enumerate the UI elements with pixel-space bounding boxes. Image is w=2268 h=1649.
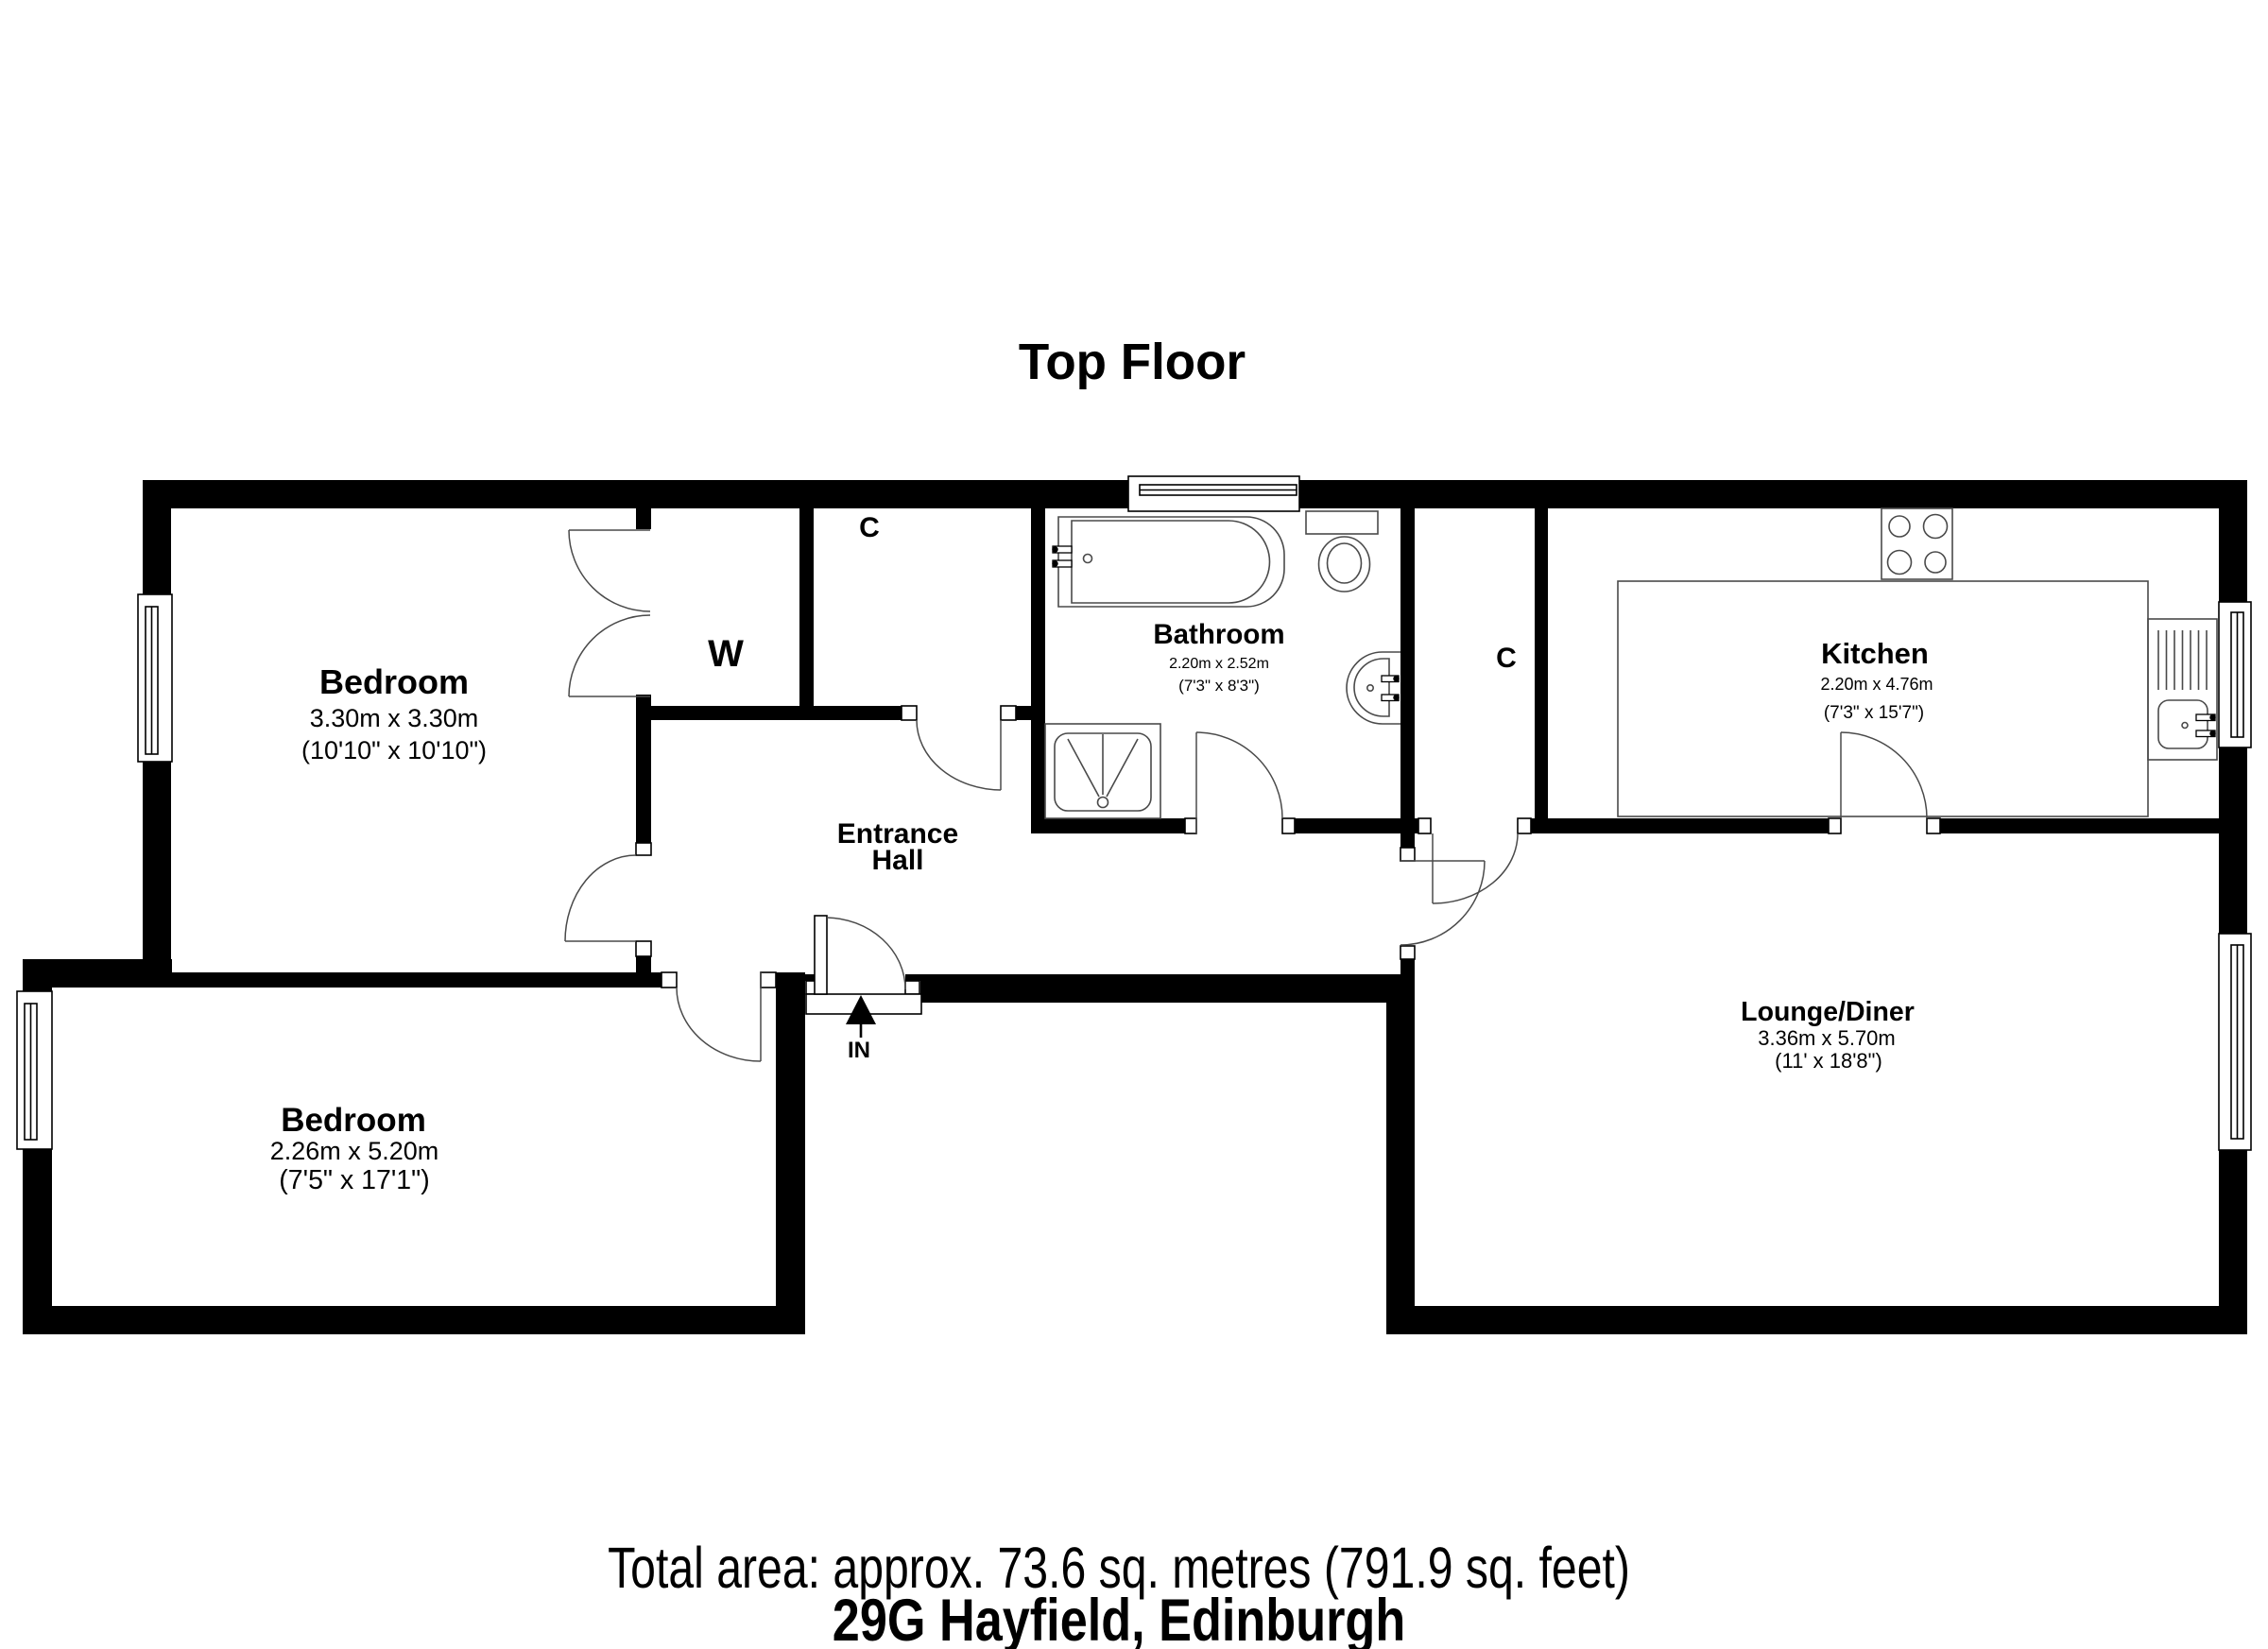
svg-text:29G Hayfield, Edinburgh: 29G Hayfield, Edinburgh [833,1588,1405,1649]
svg-text:Lounge/Diner: Lounge/Diner [1741,997,1915,1027]
svg-text:C: C [1496,643,1517,674]
svg-text:(10'10" x 10'10"): (10'10" x 10'10") [301,736,487,764]
svg-text:2.20m x 4.76m: 2.20m x 4.76m [1820,675,1933,694]
svg-text:2.26m x 5.20m: 2.26m x 5.20m [270,1137,439,1165]
svg-text:2.20m x 2.52m: 2.20m x 2.52m [1169,656,1269,672]
svg-text:3.30m x 3.30m: 3.30m x 3.30m [310,704,479,732]
svg-text:Bedroom: Bedroom [319,662,469,701]
svg-text:3.36m x 5.70m: 3.36m x 5.70m [1758,1026,1896,1050]
svg-text:W: W [708,633,744,675]
svg-text:(11' x 18'8"): (11' x 18'8") [1775,1049,1882,1073]
svg-text:Bedroom: Bedroom [281,1102,426,1139]
svg-text:C: C [859,512,880,543]
svg-text:Hall: Hall [871,845,923,876]
svg-text:(7'5" x 17'1"): (7'5" x 17'1") [279,1165,429,1195]
svg-text:IN: IN [848,1038,870,1063]
svg-text:Top Floor: Top Floor [1019,335,1246,391]
svg-text:Kitchen: Kitchen [1821,637,1929,670]
svg-text:(7'3" x 15'7"): (7'3" x 15'7") [1824,703,1924,723]
svg-text:(7'3" x 8'3"): (7'3" x 8'3") [1178,677,1260,695]
svg-text:Bathroom: Bathroom [1153,619,1284,650]
